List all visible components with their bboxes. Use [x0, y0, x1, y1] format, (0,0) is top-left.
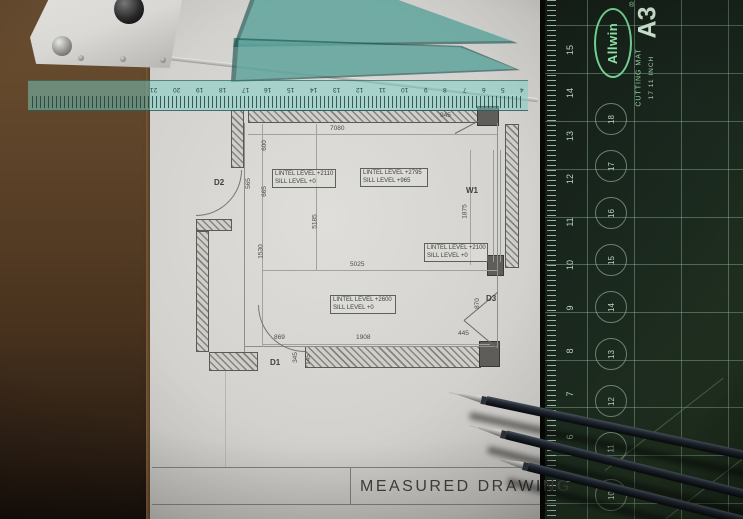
mat-edge-number: 8	[564, 343, 576, 359]
dim-top: 7080	[330, 125, 344, 132]
dim-left-lower: 1530	[258, 244, 265, 258]
dim-bottom-mid: 1908	[356, 334, 370, 341]
wall-left-upper	[231, 110, 244, 168]
mat-cell-number: 14	[595, 291, 627, 323]
ruler-number: 8	[443, 83, 447, 93]
lintel-level-text: LINTEL LEVEL +2100	[427, 245, 485, 253]
ruler-number: 6	[482, 83, 486, 93]
mat-gridline	[728, 0, 729, 519]
rivet	[160, 57, 166, 63]
annotation-box-3: LINTEL LEVEL +2100 SILL LEVEL +0	[424, 243, 488, 262]
mat-edge-number: 15	[564, 42, 576, 58]
sill-level-text: SILL LEVEL +965	[363, 178, 425, 186]
dimension-line-mid	[316, 124, 317, 270]
mat-cell-number: 15	[595, 244, 627, 276]
sill-level-text: SILL LEVEL +0	[275, 179, 333, 187]
ruler-number: 4	[520, 83, 524, 93]
ruler-number: 9	[424, 83, 428, 93]
mat-edge-number: 13	[564, 128, 576, 144]
dimension-line-top	[248, 134, 497, 135]
ruler-number: 12	[356, 83, 363, 93]
mat-edge-number: 7	[564, 386, 576, 402]
window-glazing-line	[493, 150, 494, 262]
mat-inches-label: 17 11 INCH	[645, 42, 659, 112]
wall-bottom-left	[209, 352, 258, 371]
pencil-tip	[449, 392, 458, 395]
annotation-box-4: LINTEL LEVEL +2600 SILL LEVEL +0	[330, 295, 396, 314]
label-w1: W1	[466, 186, 478, 195]
dim-left-mid: 665	[261, 186, 268, 197]
label-d1: D1	[270, 358, 280, 367]
sill-level-text: SILL LEVEL +0	[333, 305, 393, 313]
mat-cell-number-label: 13	[607, 350, 616, 359]
mat-cell-number-label: 16	[607, 209, 616, 218]
ruler-number: 11	[379, 83, 386, 93]
annotation-box-2: LINTEL LEVEL +2795 SILL LEVEL +965	[360, 168, 428, 187]
ruler-number: 15	[287, 83, 294, 93]
sill-level-text: SILL LEVEL +0	[427, 253, 485, 261]
ruler-number: 7	[463, 83, 467, 93]
window-glazing-line	[500, 150, 501, 262]
allwin-logo: Allwin	[594, 8, 632, 78]
dim-d3-width: 445	[458, 330, 469, 337]
ruler-number: 18	[219, 83, 226, 93]
lintel-level-text: LINTEL LEVEL +2110	[275, 171, 333, 179]
mat-inches-text: 17 11 INCH	[649, 55, 656, 98]
dim-d3-height: 870	[474, 298, 481, 309]
wall-right-window	[505, 124, 519, 268]
construction-line	[225, 371, 226, 467]
dim-left-upper: 600	[261, 140, 268, 151]
mat-cell-number: 16	[595, 197, 627, 229]
mat-size-text: A3	[634, 6, 663, 38]
pencil-tip	[491, 457, 500, 461]
dim-top-right: 945	[440, 112, 451, 119]
mat-cell-number: 18	[595, 103, 627, 135]
dim-interior-height: 5185	[312, 214, 319, 228]
mat-cell-number-label: 12	[607, 397, 616, 406]
lintel-level-text: LINTEL LEVEL +2795	[363, 170, 425, 178]
ruler-number: 19	[196, 83, 203, 93]
mat-edge-number: 9	[564, 300, 576, 316]
mat-cell-number-label: 17	[607, 162, 616, 171]
rivet	[120, 56, 126, 62]
wall-face-left-line	[244, 123, 245, 352]
adjustable-square-body	[30, 0, 182, 68]
mat-cell-number: 12	[595, 385, 627, 417]
dim-bottom-left: 869	[274, 334, 285, 341]
wall-left-step	[196, 219, 232, 231]
brand-label: Allwin	[606, 22, 621, 63]
wood-desk	[0, 0, 165, 519]
mat-cell-number: 17	[595, 150, 627, 182]
dim-d2-width: 565	[245, 178, 252, 189]
title-block-line-top	[152, 467, 540, 468]
mat-edge-number: 11	[564, 214, 576, 230]
ruler-tick-marks	[32, 96, 524, 108]
mat-cell-number-label: 18	[607, 115, 616, 124]
title-block-divider	[350, 467, 351, 504]
mat-gridline	[545, 407, 743, 408]
mat-gridline	[545, 360, 743, 361]
dim-interior-width: 5025	[350, 261, 364, 268]
mat-product-text: CUTTING MAT	[636, 48, 643, 106]
ruler-number: 10	[401, 83, 408, 93]
wall-left-lower	[196, 231, 209, 352]
ruler-number: 5	[501, 83, 505, 93]
wall-top	[248, 110, 497, 123]
mat-gridline	[545, 121, 743, 122]
pivot-screw	[52, 36, 72, 56]
ruler-numbers: 21 20 19 18 17 16 15 14 13 12 11 10 9 8 …	[150, 83, 524, 93]
ruler-number: 20	[173, 83, 180, 93]
wall-bottom	[305, 346, 481, 368]
ruler-number: 13	[333, 83, 340, 93]
annotation-box-1: LINTEL LEVEL +2110 SILL LEVEL +0	[272, 169, 336, 188]
ruler-number: 17	[242, 83, 249, 93]
mat-cell-number-label: 14	[607, 303, 616, 312]
photo-scene: 15 14 13 12 11 10 9 8 7 6 5 18 17 16 15 …	[0, 0, 743, 519]
mat-edge-number: 14	[564, 85, 576, 101]
title-block-line-bottom	[152, 504, 540, 505]
lintel-level-text: LINTEL LEVEL +2600	[333, 297, 393, 305]
dim-d1-a: 345	[292, 352, 299, 363]
mat-gridline	[545, 169, 743, 170]
column-mid-right	[487, 255, 504, 276]
label-d3: D3	[486, 294, 496, 303]
mat-cell-number: 13	[595, 338, 627, 370]
mat-edge-number: 10	[564, 257, 576, 273]
mat-size-label: A3	[631, 0, 665, 44]
mat-edge-number: 12	[564, 171, 576, 187]
ruler-number: 16	[264, 83, 271, 93]
ruler-number: 14	[310, 83, 317, 93]
mat-cell-number-label: 15	[607, 256, 616, 265]
wall-face-right-line	[497, 123, 498, 348]
dim-d1-b: 145	[305, 354, 312, 365]
dim-w1-height: 1875	[462, 204, 469, 218]
rivet	[78, 55, 84, 61]
label-d2: D2	[214, 178, 224, 187]
ruler-number: 21	[150, 83, 157, 93]
dimension-line-width	[262, 270, 497, 271]
pencil-tip	[469, 425, 478, 429]
